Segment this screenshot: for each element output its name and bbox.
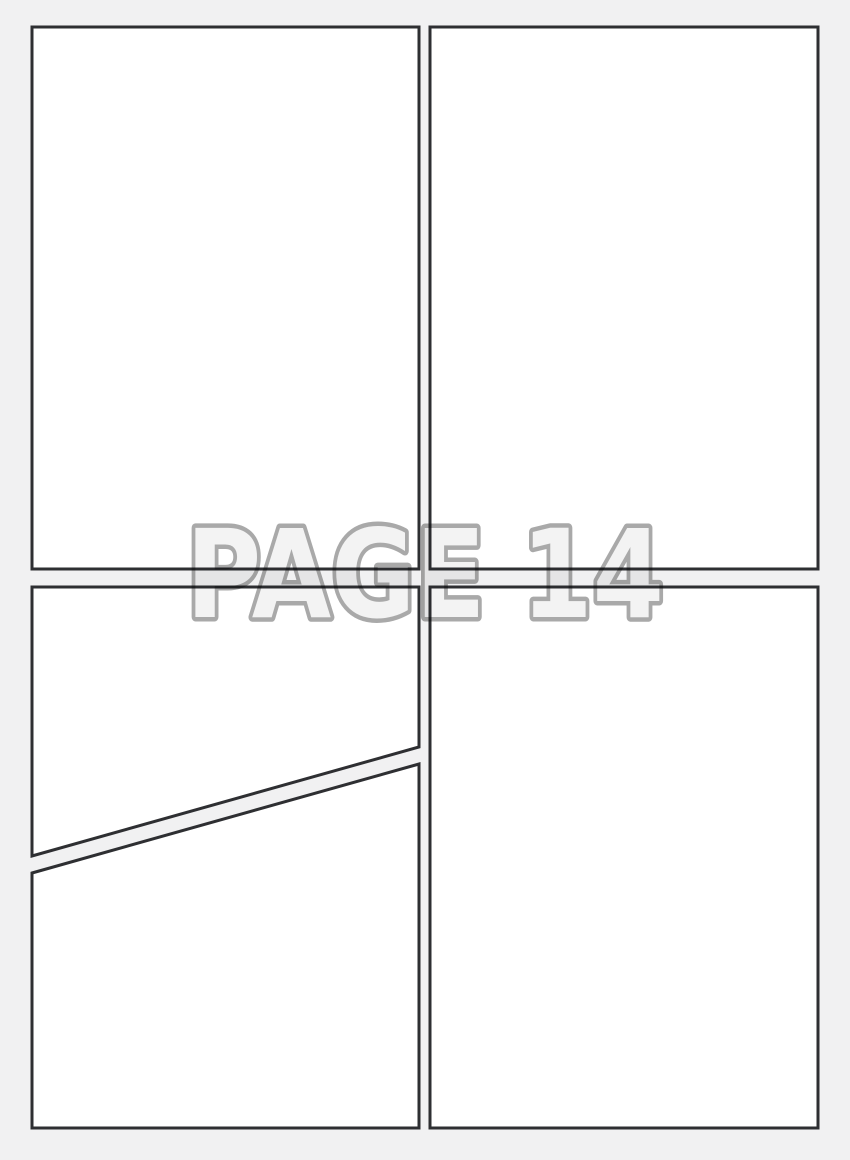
panel-bottom-right <box>430 587 818 1128</box>
page-number-watermark: PAGE 14 <box>186 504 664 646</box>
panel-top-right <box>430 27 818 569</box>
comic-page-template: PAGE 14 <box>0 0 850 1160</box>
comic-page-canvas: PAGE 14 <box>0 0 850 1160</box>
panel-top-left <box>32 27 419 569</box>
